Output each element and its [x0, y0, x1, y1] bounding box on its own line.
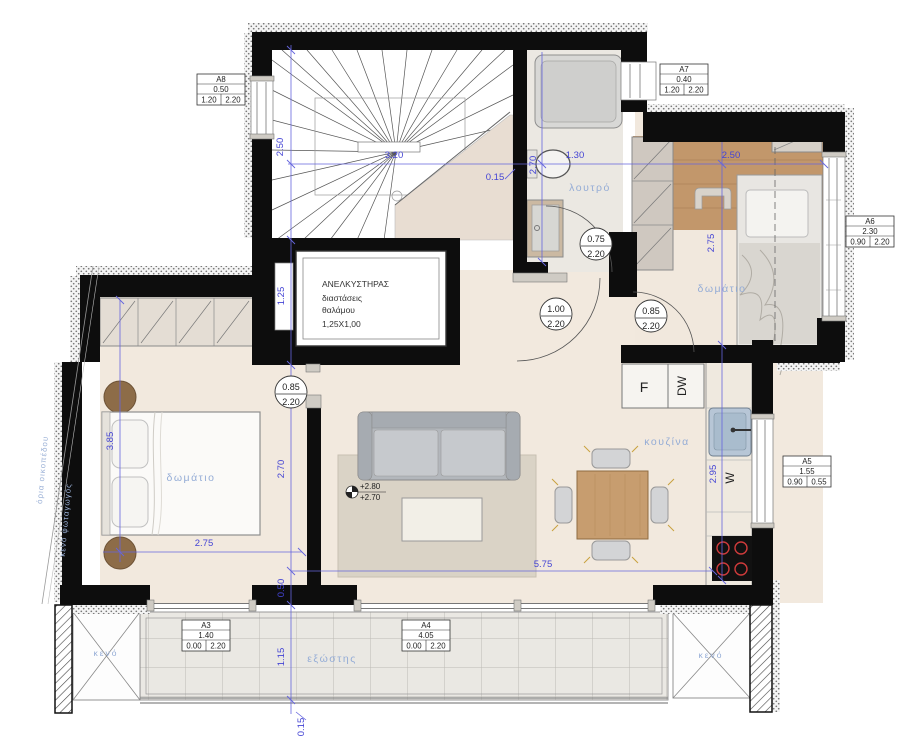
bedroom-left-label: δωμάτιο: [167, 472, 216, 484]
svg-text:2.20: 2.20: [874, 238, 890, 247]
elevator: ΑΝΕΛΚΥΣΤΗΡΑΣ διαστάσεις θαλάμου 1,25X1,0…: [275, 251, 446, 346]
pillow: [112, 420, 148, 468]
dim-elevator-width: 1.25: [276, 287, 287, 306]
dim-stair-depth: 3.20: [385, 150, 404, 161]
svg-text:1.40: 1.40: [198, 631, 214, 640]
window-a7: [621, 62, 656, 100]
svg-text:2.20: 2.20: [587, 249, 605, 259]
door-tag-bedroom-right: 0.85 2.20: [635, 300, 667, 332]
kitchen-label: κουζίνα: [644, 436, 690, 448]
svg-text:2.20: 2.20: [688, 86, 704, 95]
window-tag-a7: A7 0.40 1.20 2.20: [660, 64, 708, 95]
svg-text:1.55: 1.55: [799, 467, 815, 476]
dim-door-offset: 0.50: [276, 579, 287, 598]
dim-living-depth: 2.70: [276, 460, 287, 479]
svg-text:0.50: 0.50: [213, 85, 229, 94]
bathroom-sink: [527, 200, 563, 257]
svg-text:1.20: 1.20: [664, 86, 680, 95]
coffee-table: [402, 498, 482, 541]
washer-label: W: [723, 472, 737, 484]
hatched-wall-right: [750, 605, 772, 712]
chair: [592, 449, 630, 468]
plot-boundary-label: όρια οικοπέδου: [35, 435, 50, 504]
svg-text:2.30: 2.30: [862, 227, 878, 236]
sofa: [358, 412, 520, 480]
svg-text:1.00: 1.00: [547, 304, 565, 314]
floor-plan-canvas: +2.80 +2.70: [0, 0, 904, 744]
bathroom-label: λουτρό: [569, 182, 611, 194]
pillow: [112, 477, 148, 527]
dim-living-width: 5.75: [534, 559, 553, 570]
svg-text:A6: A6: [865, 217, 875, 226]
entry-threshold: [513, 273, 567, 282]
window-tag-a6: A6 2.30 0.90 2.20: [846, 216, 894, 247]
window-a6: [822, 152, 846, 321]
dim-balcony-depth: 1.15: [276, 648, 287, 667]
door-tag-entry: 1.00 2.20: [540, 298, 572, 330]
window-a5: [751, 414, 774, 528]
svg-text:0.00: 0.00: [186, 642, 202, 651]
sink: [709, 408, 751, 456]
dim-bed2-width: 2.50: [722, 150, 741, 161]
bedroom-right-label: δωμάτιο: [698, 283, 747, 295]
door-tag-bathroom: 0.75 2.20: [580, 228, 612, 260]
wardrobe-left: [100, 298, 253, 346]
chair: [555, 487, 572, 523]
dim-bed2-depth: 2.75: [706, 234, 717, 253]
window-tag-a8: A8 0.50 1.20 2.20: [197, 74, 245, 105]
svg-text:0.55: 0.55: [811, 478, 827, 487]
dim-stair-width: 2.50: [275, 138, 286, 157]
wardrobe-right: [632, 137, 673, 270]
level-lower: +2.70: [360, 493, 381, 502]
svg-text:0.85: 0.85: [282, 382, 300, 392]
dining-table: [577, 471, 648, 539]
fridge-label: F: [640, 379, 649, 395]
svg-text:0.40: 0.40: [676, 75, 692, 84]
svg-text:A4: A4: [421, 621, 431, 630]
dim-bath-width: 1.30: [566, 150, 585, 161]
dim-bed1-width: 2.75: [195, 538, 214, 549]
svg-text:4.05: 4.05: [418, 631, 434, 640]
window-a8: [250, 76, 274, 139]
elevator-line2: διαστάσεις: [322, 293, 362, 303]
bedroom-left-furniture: [100, 298, 260, 569]
window-tag-a5: A5 1.55 0.90 0.55: [783, 456, 831, 487]
window-tag-a3: A3 1.40 0.00 2.20: [182, 620, 230, 651]
hatched-wall-left: [55, 605, 72, 713]
window-tag-a4: A4 4.05 0.00 2.20: [402, 620, 450, 651]
void-right-label: κενό: [698, 650, 723, 660]
svg-text:2.20: 2.20: [547, 319, 565, 329]
svg-text:2.20: 2.20: [225, 96, 241, 105]
svg-text:0.85: 0.85: [642, 306, 660, 316]
elevator-title: ΑΝΕΛΚΥΣΤΗΡΑΣ: [322, 279, 389, 289]
svg-text:2.20: 2.20: [642, 321, 660, 331]
chair: [651, 487, 668, 523]
dim-kitchen-depth: 2.95: [708, 465, 719, 484]
svg-text:A5: A5: [802, 457, 812, 466]
svg-text:1.20: 1.20: [201, 96, 217, 105]
dim-bath-offset: 0.15: [486, 172, 505, 183]
void-left-label: κενό: [93, 648, 118, 658]
svg-text:0.90: 0.90: [850, 238, 866, 247]
balcony-label: εξώστης: [307, 653, 357, 665]
svg-text:2.20: 2.20: [430, 642, 446, 651]
svg-text:0.00: 0.00: [406, 642, 422, 651]
svg-text:A7: A7: [679, 65, 689, 74]
svg-text:0.90: 0.90: [787, 478, 803, 487]
cooktop: [712, 536, 752, 581]
chair: [592, 541, 630, 560]
pillow: [746, 190, 808, 237]
svg-text:2.20: 2.20: [282, 397, 300, 407]
elevator-line4: 1,25X1,00: [322, 319, 361, 329]
dishwasher-label: DW: [675, 375, 689, 396]
dim-bath-depth: 2.70: [528, 156, 539, 175]
level-upper: +2.80: [360, 482, 381, 491]
dim-bed1-depth: 3.85: [105, 432, 116, 451]
svg-text:A3: A3: [201, 621, 211, 630]
dim-balcony-edge: 0.15: [296, 718, 307, 737]
svg-text:0.75: 0.75: [587, 234, 605, 244]
svg-text:2.20: 2.20: [210, 642, 226, 651]
elevator-line3: θαλάμου: [322, 305, 355, 315]
svg-text:A8: A8: [216, 75, 226, 84]
door-tag-bedroom-left: 0.85 2.20: [275, 376, 307, 408]
